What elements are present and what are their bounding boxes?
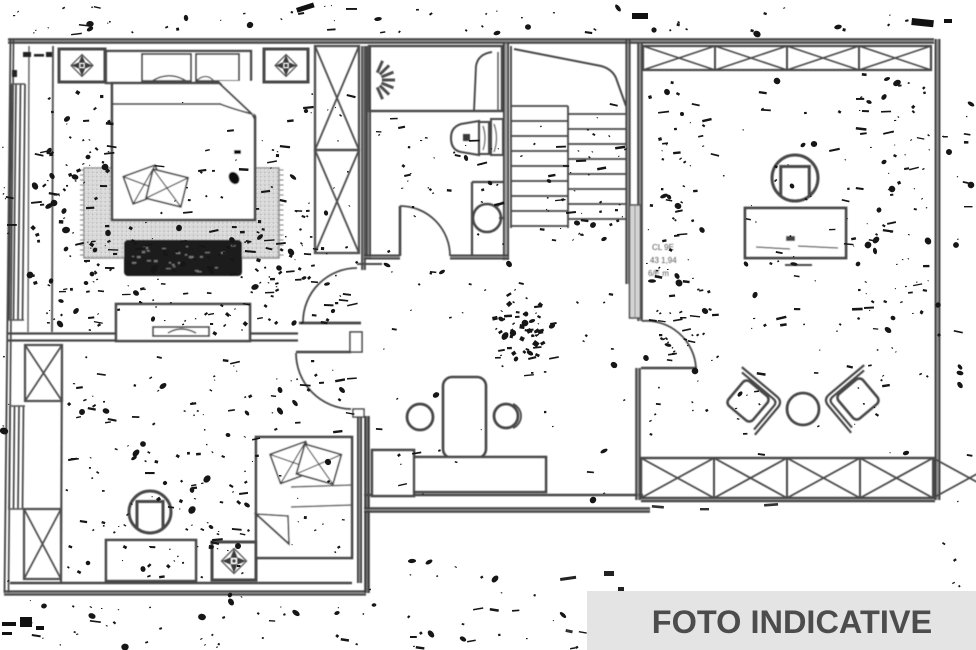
svg-text:43 1,94: 43 1,94 xyxy=(650,256,677,265)
svg-text:FOTO INDICATIVE: FOTO INDICATIVE xyxy=(652,604,932,640)
